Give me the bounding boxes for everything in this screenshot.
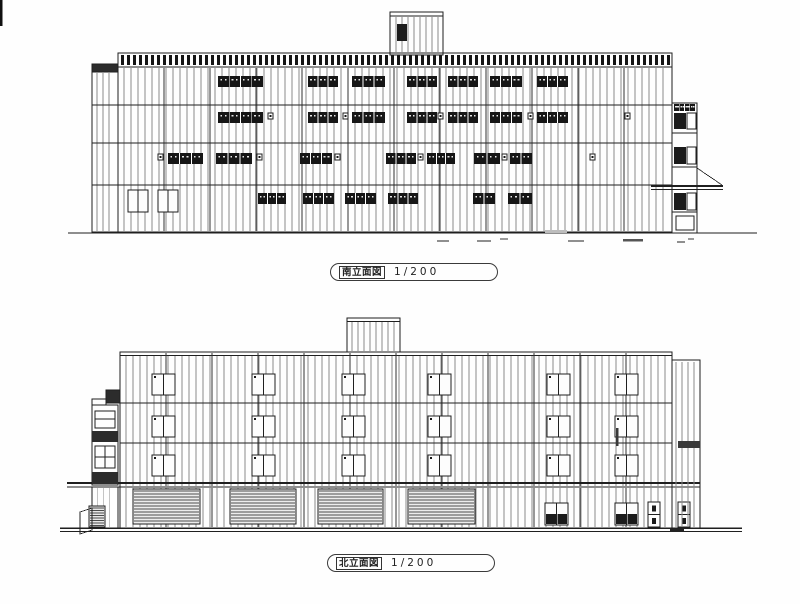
drawing-sheet: 南立面図 1/200 北立面図 1/200 [0, 0, 800, 600]
drawing-canvas [0, 0, 800, 600]
scan-artifact [0, 0, 3, 26]
south-elevation-title: 南立面図 [339, 266, 385, 279]
north-elevation-label: 北立面図 1/200 [327, 554, 495, 572]
elevations-svg [0, 0, 800, 600]
north-elevation [60, 318, 742, 534]
north-elevation-title: 北立面図 [336, 557, 382, 570]
south-elevation-label: 南立面図 1/200 [330, 263, 498, 281]
north-elevation-scale: 1/200 [391, 557, 436, 569]
south-elevation [68, 12, 757, 243]
south-elevation-scale: 1/200 [394, 266, 439, 278]
